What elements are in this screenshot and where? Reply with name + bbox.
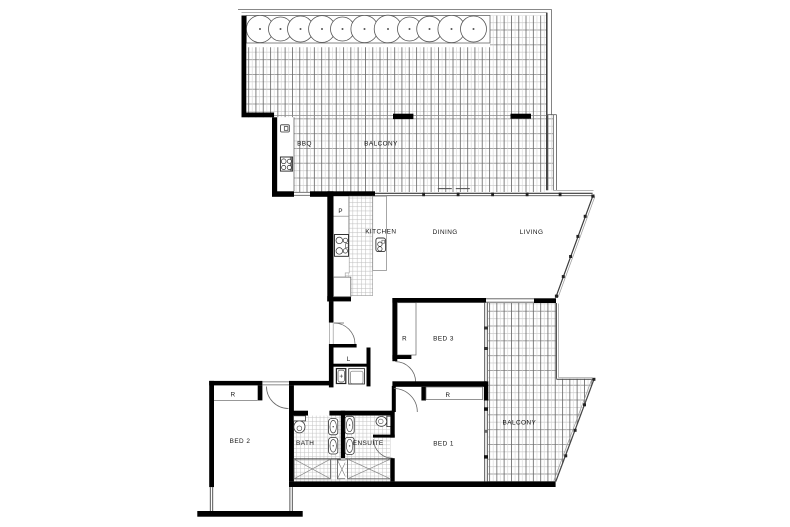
svg-text:LIVING: LIVING [520, 229, 544, 236]
svg-text:BALCONY: BALCONY [364, 140, 398, 147]
svg-text:R: R [231, 391, 236, 398]
svg-text:BED 1: BED 1 [433, 441, 454, 448]
svg-text:L: L [347, 356, 351, 363]
svg-text:DINING: DINING [433, 229, 458, 236]
svg-text:BALCONY: BALCONY [503, 419, 537, 426]
svg-text:KITCHEN: KITCHEN [365, 229, 396, 236]
svg-text:R: R [402, 335, 407, 342]
svg-text:P: P [338, 208, 342, 215]
svg-text:ENSUITE: ENSUITE [353, 440, 384, 447]
svg-text:BBQ: BBQ [297, 140, 312, 147]
svg-text:BED 3: BED 3 [433, 335, 454, 342]
svg-text:BATH: BATH [296, 440, 314, 447]
svg-text:R: R [445, 392, 450, 399]
svg-text:BED 2: BED 2 [230, 438, 251, 445]
